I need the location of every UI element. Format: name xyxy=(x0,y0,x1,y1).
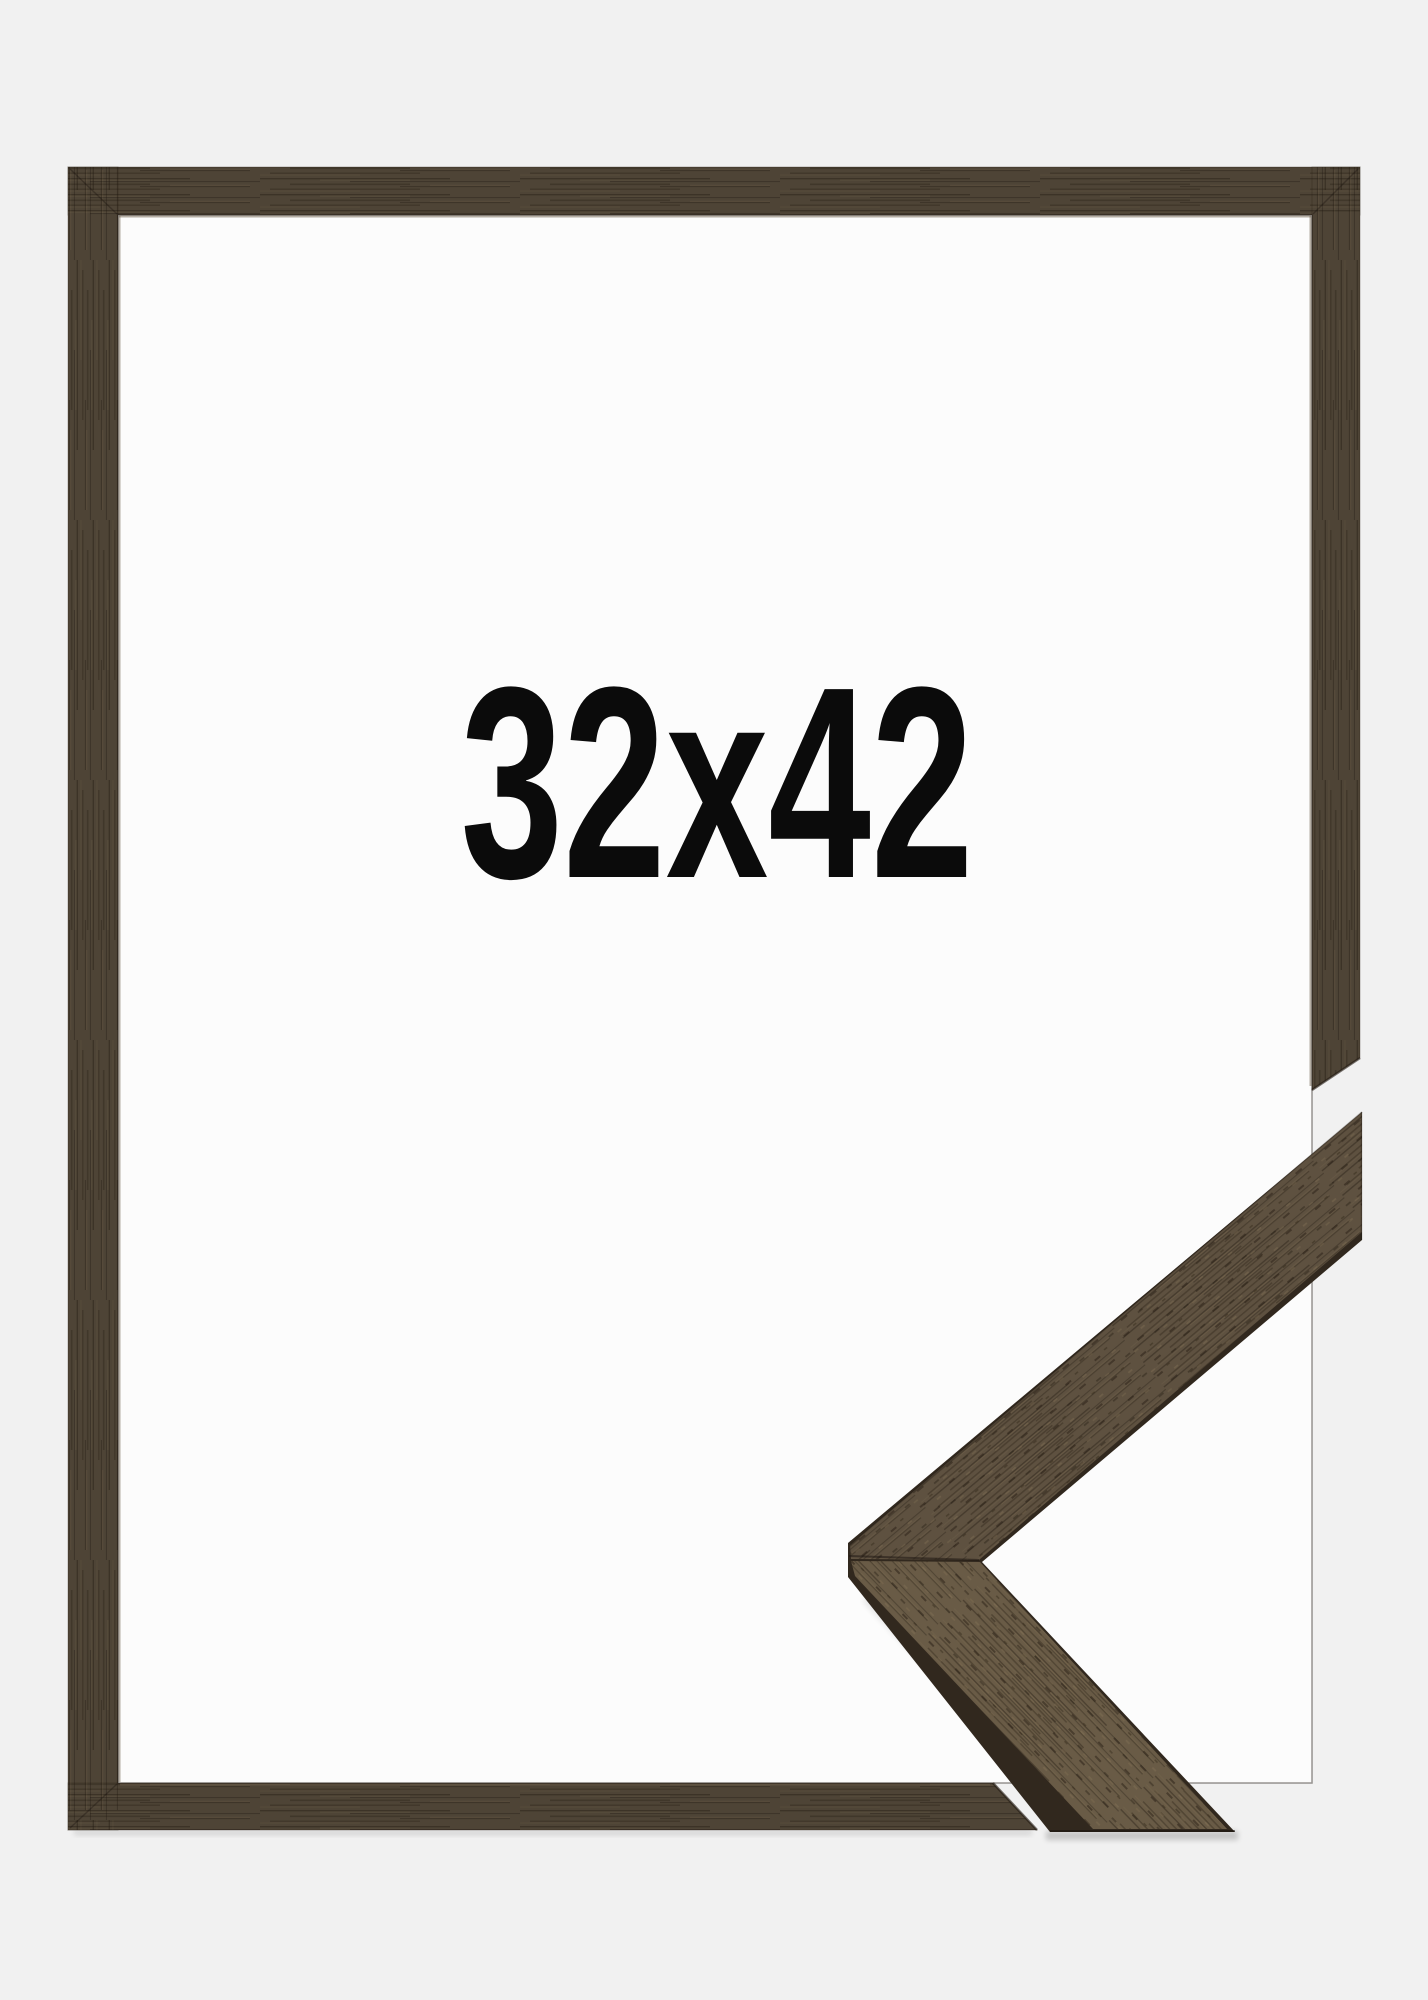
sample-bottom-shadow xyxy=(1046,1831,1238,1840)
frame-backing xyxy=(118,215,1312,1783)
frame-bottom-shadow xyxy=(74,1830,1032,1835)
product-photo-stage: 32x42 xyxy=(0,0,1428,2000)
frame-product-illustration: 32x42 xyxy=(0,0,1428,2000)
size-label: 32x42 xyxy=(461,630,974,935)
